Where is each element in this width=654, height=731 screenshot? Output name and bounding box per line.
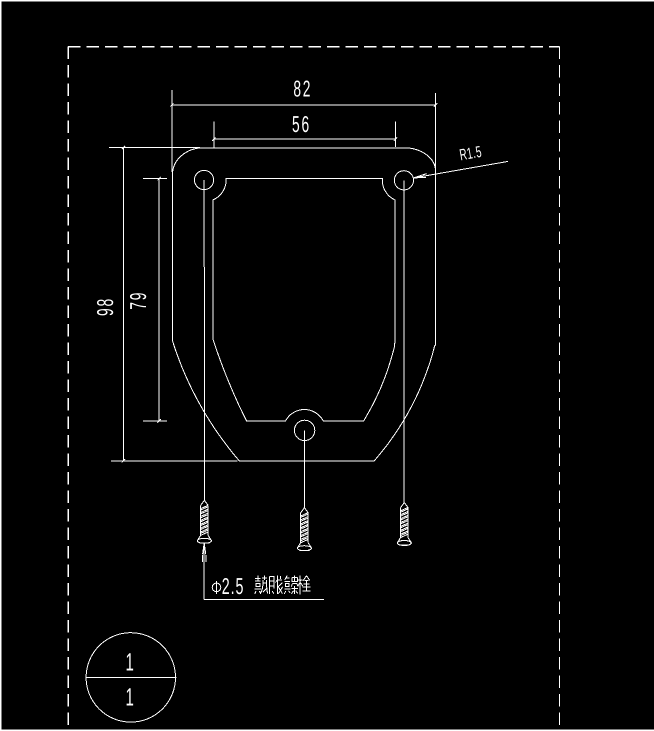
svg-text:56: 56 — [292, 111, 311, 137]
svg-text:2.5: 2.5 — [222, 573, 245, 599]
svg-text:1: 1 — [126, 683, 134, 711]
svg-text:1: 1 — [126, 649, 134, 677]
svg-text:82: 82 — [293, 75, 312, 101]
svg-text:79: 79 — [125, 291, 151, 310]
svg-text:98: 98 — [92, 297, 118, 316]
